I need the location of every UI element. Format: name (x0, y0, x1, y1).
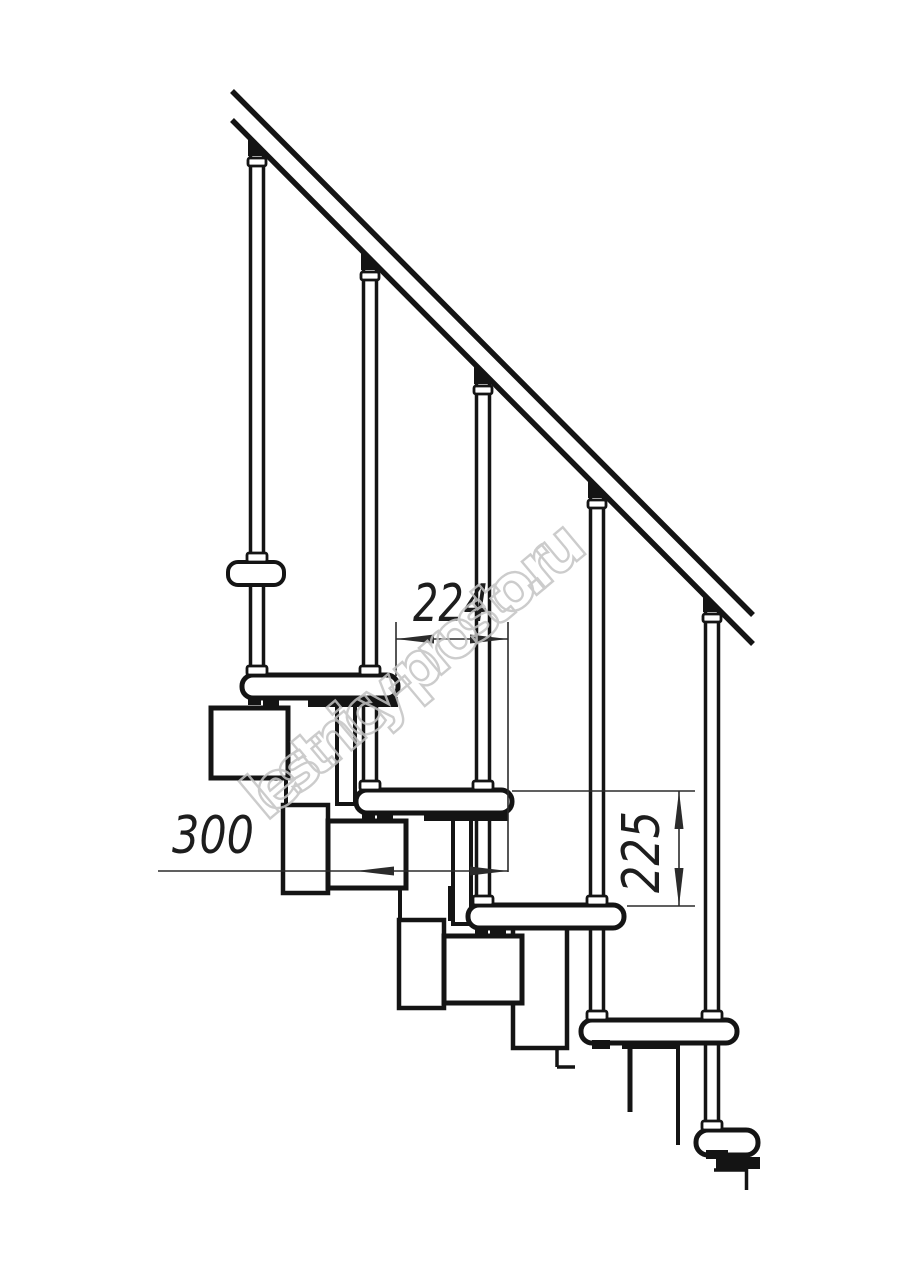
module-box-2a (399, 920, 444, 1008)
mount-tab (490, 926, 506, 937)
handrail-top-edge (232, 91, 753, 615)
collar (361, 272, 379, 280)
collar (702, 1121, 722, 1130)
rail-joint-wedge-4 (588, 480, 606, 498)
collar (703, 614, 721, 622)
baluster-4 (591, 498, 604, 1028)
technical-drawing-canvas: 224 300 225 lestnicy-prosto.ru (0, 0, 914, 1280)
collar (474, 386, 492, 394)
staircase-drawing: 224 300 225 lestnicy-prosto.ru (0, 0, 914, 1280)
baluster-5 (706, 612, 719, 1140)
collar (247, 553, 267, 562)
rail-joint-wedge-5 (703, 594, 721, 612)
dim-label-300: 300 (172, 806, 254, 866)
collar (588, 500, 606, 508)
collar (360, 781, 380, 790)
module-box-1b (328, 821, 406, 888)
mount-tab (263, 696, 279, 707)
collar (248, 158, 266, 166)
tread-0-partial (228, 562, 284, 585)
collar (473, 896, 493, 905)
mount-plate (424, 812, 508, 821)
module-neck-2 (453, 806, 471, 924)
mount-tab (248, 696, 261, 705)
tread-3 (468, 905, 624, 928)
tread-4 (581, 1020, 737, 1043)
collar (702, 1011, 722, 1020)
rail-joint-wedge-1 (248, 138, 266, 156)
mount-plate (716, 1157, 760, 1169)
watermark-text: lestnicy-prosto.ru (229, 509, 596, 834)
arrowhead-up (675, 791, 684, 829)
mount-tab (592, 1040, 610, 1049)
mount-tab (362, 811, 375, 820)
mount-tab (377, 811, 393, 822)
module-box-2b (444, 936, 522, 1003)
mount-plate (622, 1042, 680, 1049)
floor-support-detail (714, 1168, 748, 1190)
mount-tab (475, 926, 488, 935)
collar (587, 896, 607, 905)
collar (587, 1011, 607, 1020)
dim-label-225: 225 (612, 811, 672, 893)
arrowhead-down (675, 868, 684, 906)
baluster-1 (251, 156, 264, 683)
tread-2 (356, 790, 512, 813)
collar (247, 666, 267, 675)
collar (473, 781, 493, 790)
